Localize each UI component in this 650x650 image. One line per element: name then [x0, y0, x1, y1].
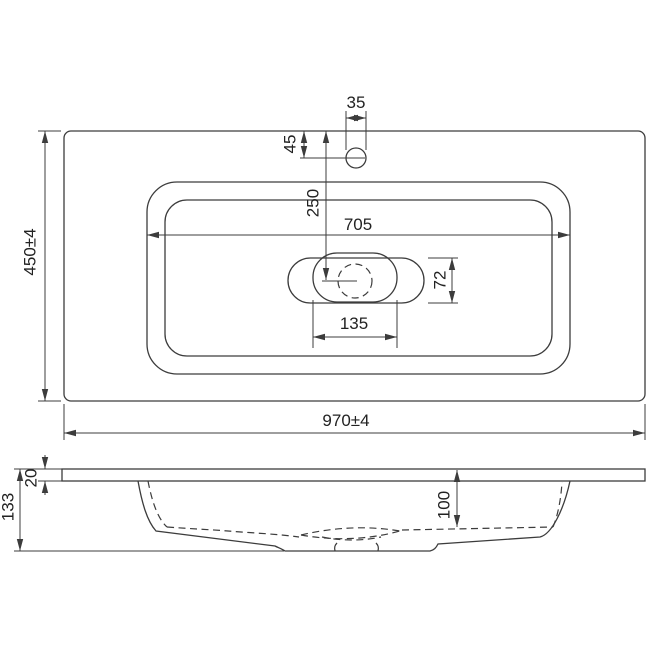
dim-overall-width-label: 970±4 — [322, 411, 369, 430]
dim-drain-recess-height: 72 — [428, 258, 458, 303]
dim-drain-recess-width: 135 — [313, 300, 397, 348]
dim-faucet-diameter: 35 — [346, 93, 366, 150]
dim-countertop-thickness-label: 20 — [22, 469, 41, 488]
dim-bowl-width-label: 705 — [344, 215, 372, 234]
side-view: 20 133 100 — [0, 455, 645, 551]
dim-faucet-from-edge-label: 45 — [281, 135, 300, 154]
dim-faucet-diameter-label: 35 — [347, 93, 366, 112]
drawing-canvas: 35 45 250 705 72 135 — [0, 0, 650, 650]
dim-overall-depth: 450±4 — [21, 131, 62, 401]
countertop-slab-profile — [62, 469, 645, 481]
bowl-inner-left-wall — [148, 481, 167, 527]
dim-faucet-from-edge: 45 — [281, 131, 366, 158]
bowl-inner-right-wall — [553, 482, 562, 527]
dim-drain-from-edge-label: 250 — [304, 189, 323, 217]
drain-tick-right — [376, 543, 378, 551]
dim-bowl-depth-label: 100 — [435, 491, 454, 519]
bowl-outer-profile — [138, 481, 570, 551]
drain-tick-left — [335, 543, 337, 551]
dim-countertop-thickness: 20 — [14, 455, 62, 495]
dim-overall-width: 970±4 — [64, 404, 645, 440]
dim-bowl-width: 705 — [147, 215, 570, 235]
dim-drain-recess-width-label: 135 — [340, 314, 368, 333]
bowl-outer-edge — [147, 182, 570, 374]
dim-drain-recess-height-label: 72 — [431, 271, 450, 290]
dim-overall-depth-label: 450±4 — [21, 228, 40, 275]
washbasin-technical-drawing: 35 45 250 705 72 135 — [0, 0, 650, 650]
top-view: 35 45 250 705 72 135 — [21, 93, 646, 440]
bowl-inner-bottom-right — [402, 527, 553, 530]
dim-overall-height-label: 133 — [0, 493, 18, 521]
